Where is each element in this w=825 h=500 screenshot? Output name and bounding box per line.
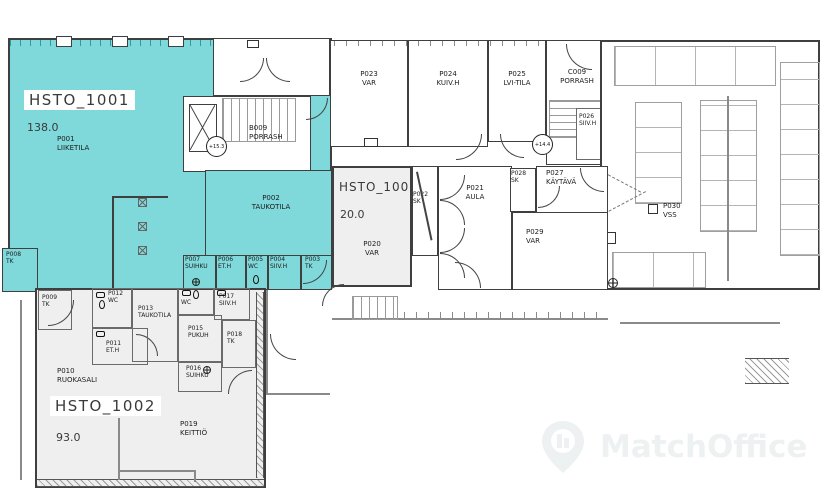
pillar-icon: [56, 36, 72, 47]
room-label-p030: P030VSS: [663, 202, 681, 220]
room-label-p025: P025LVI-TILA: [489, 70, 545, 88]
zone-area-hsto-1002: 93.0: [56, 431, 81, 444]
door-threshold: [364, 138, 378, 147]
shower-drain-icon: [192, 278, 200, 286]
toilet-icon: [99, 300, 105, 309]
watermark-label: MatchOffice: [600, 429, 807, 465]
room-label-p008: P008TK: [6, 252, 21, 266]
room-label-p028: P028SK: [511, 171, 526, 185]
door-arc: [500, 134, 524, 158]
toilet-icon: [193, 290, 199, 299]
zone-area-hsto-1003: 20.0: [340, 208, 365, 221]
zone-area-hsto-1001: 138.0: [27, 121, 59, 134]
room-label-p011: P011ET.H: [106, 341, 121, 355]
counter-line: [118, 470, 196, 472]
rack-divider: [727, 96, 729, 281]
shelving-icon: [614, 46, 776, 86]
room-label-p007: P007SUIHKU: [185, 257, 208, 271]
watermark: MatchOffice: [540, 420, 807, 474]
room-label-p016: P016SUIHKU: [186, 366, 209, 380]
pillar-icon: [112, 36, 128, 47]
column-marker: [648, 204, 658, 214]
level-value: +14.4: [535, 142, 550, 148]
room-label-p004: P004SIIV.H: [270, 257, 287, 271]
room-label-p017: P017SIIV.H: [219, 294, 236, 308]
room-label-p023: P023VAR: [340, 70, 398, 88]
room-label-p020: P020VAR: [332, 240, 412, 258]
room-label-p001: P001LIIKETILA: [57, 135, 89, 153]
room-label-p012: P012WC: [108, 291, 123, 305]
room-label-p024: P024KUIV.H: [418, 70, 478, 88]
room-label-p013: P013TAUKOTILA: [138, 306, 171, 320]
door-arc: [456, 134, 482, 160]
drain-icon: [608, 278, 618, 288]
exterior-wall: [620, 322, 780, 324]
sink-icon: [96, 292, 105, 298]
room-label-p019: P019KEITTIÖ: [180, 420, 207, 438]
room-label-p006: P006ET.H: [218, 257, 233, 271]
room-label-p026: P026SIIV.H: [579, 114, 596, 128]
shelving-icon: [780, 62, 820, 256]
floor-plan: B009PORRASH +15.3 HSTO_1001 138.0 P001LI…: [0, 0, 825, 500]
partition-wall: [112, 196, 114, 288]
room-p025: [488, 40, 546, 142]
exterior-hatch-box: [745, 358, 789, 384]
column-icon: [138, 246, 147, 255]
room-p023: [330, 40, 408, 147]
zone-label-hsto-1001: HSTO_1001: [24, 90, 135, 110]
zone-label-hsto-1002: HSTO_1002: [50, 396, 161, 416]
column-icon: [138, 198, 147, 207]
room-label-p010: P010RUOKASALI: [57, 367, 97, 385]
room-label-p018: P018TK: [227, 332, 242, 346]
counter-line: [194, 470, 196, 482]
stairs-icon: [352, 296, 398, 320]
zone-label-hsto-1003: HSTO_1003: [339, 180, 418, 194]
room-label-p002: P002TAUKOTILA: [210, 194, 332, 212]
room-label-p005: P005WC: [248, 257, 263, 271]
room-label-p029: P029VAR: [526, 228, 544, 246]
exterior-wall: [266, 290, 268, 395]
room-p029: [512, 212, 608, 290]
room-label-c009: C009PORRASH: [546, 68, 608, 86]
door-threshold: [247, 40, 259, 48]
hatched-wall: [256, 292, 264, 478]
window-wall-icon: [334, 41, 542, 46]
room-p002: [205, 170, 332, 257]
window-wall-icon: [404, 312, 608, 319]
room-p024: [408, 40, 488, 147]
hatched-wall: [37, 479, 264, 487]
exterior-wall: [266, 393, 330, 395]
exterior-wall: [20, 300, 22, 480]
stairs-dotted-icon: [612, 252, 706, 288]
level-value: +15.3: [209, 144, 224, 150]
pillar-icon: [168, 36, 184, 47]
level-marker-c: +14.4: [532, 134, 553, 155]
room-label-wc: WC: [181, 300, 191, 307]
room-label-b009: B009PORRASH: [249, 124, 283, 142]
sink-icon: [182, 290, 191, 296]
sink-icon: [96, 331, 105, 337]
level-marker-b: +15.3: [206, 136, 227, 157]
room-label-p015: P015PUKUH: [188, 326, 209, 340]
toilet-icon: [253, 275, 259, 284]
door-arc: [270, 334, 296, 360]
map-pin-icon: [540, 420, 586, 474]
room-label-p027: P027KÄYTÄVÄ: [546, 169, 576, 187]
shelving-icon: [635, 102, 682, 204]
column-icon: [138, 222, 147, 231]
